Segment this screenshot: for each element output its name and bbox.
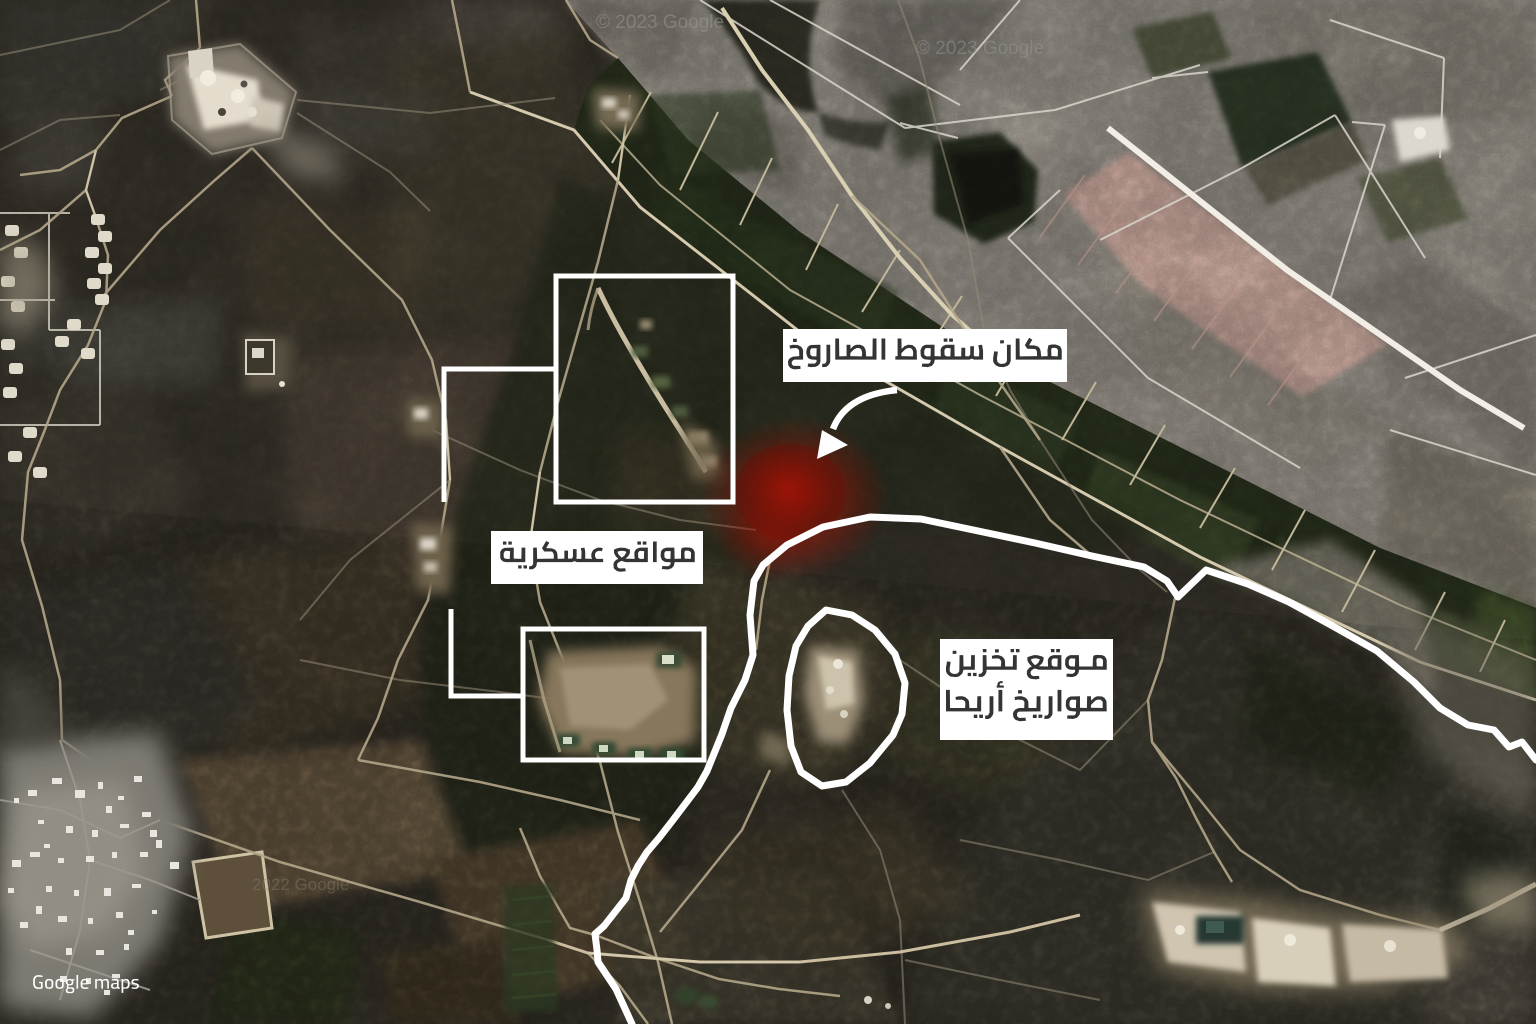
svg-text:2022 Google: 2022 Google [252, 875, 349, 894]
svg-text:© 2023 Google: © 2023 Google [596, 12, 724, 33]
svg-text:© 2023 Google: © 2023 Google [916, 38, 1044, 59]
